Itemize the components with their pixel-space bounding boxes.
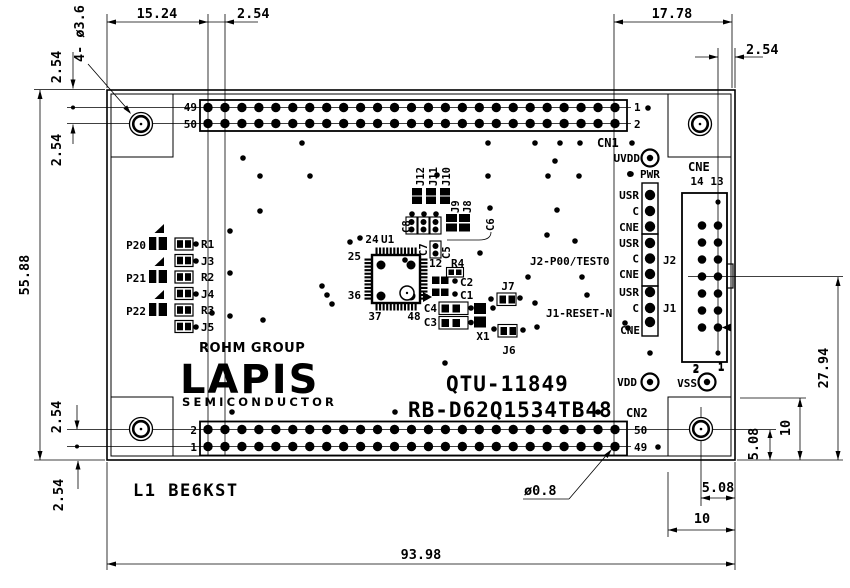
j2-signal-label: J2-P00/TEST0 <box>530 255 609 268</box>
cap-pad <box>441 289 449 297</box>
cne-pin14-label: 14 <box>690 175 704 188</box>
via-dot <box>240 155 246 161</box>
pin-dot <box>288 103 297 112</box>
jumper-pad <box>509 296 516 304</box>
pin-dot <box>441 119 450 128</box>
via-dot <box>452 278 458 284</box>
pin-dot <box>220 425 229 434</box>
pin-dot <box>288 119 297 128</box>
pin-dot <box>237 119 246 128</box>
via-dot <box>260 317 266 323</box>
pwr-label: PWR <box>640 168 660 181</box>
pin-dot <box>203 425 212 434</box>
rohm-group-text: ROHM GROUP <box>199 341 305 356</box>
pin-dot <box>542 119 551 128</box>
via-dot <box>557 140 563 146</box>
c4-label: C4 <box>424 302 438 315</box>
uvdd-label: UVDD <box>614 152 641 165</box>
pin-dot <box>339 425 348 434</box>
via-dot <box>324 292 330 298</box>
pin-dot <box>526 119 535 128</box>
chip-pad <box>185 257 191 265</box>
dim-value: 17.78 <box>652 6 693 22</box>
dim-left-top-pitch: 2.54 <box>49 125 76 167</box>
pin-dot <box>698 238 707 247</box>
cne-pin13-label: 13 <box>710 175 723 188</box>
pin-dot <box>288 442 297 451</box>
via-dot <box>491 326 497 332</box>
via-dot <box>490 305 496 311</box>
strip-pad <box>645 238 655 248</box>
via-dot <box>347 239 353 245</box>
pin-dot <box>339 103 348 112</box>
c8-label: C8 <box>401 220 413 233</box>
dim-value: 15.24 <box>137 6 178 22</box>
index-dot <box>715 199 720 204</box>
strip-pad <box>645 287 655 297</box>
j1-group-label: J1 <box>663 302 677 315</box>
pin-dot <box>203 442 212 451</box>
c5-label: C5 <box>441 246 453 259</box>
cn2-label: CN2 <box>626 406 648 420</box>
pin-dot <box>441 425 450 434</box>
pin-dot <box>373 119 382 128</box>
led-gap <box>156 303 158 316</box>
strip-row-label: CNE <box>620 324 640 337</box>
pin-dot <box>322 442 331 451</box>
cap-pad <box>433 219 439 225</box>
cap-pad <box>432 289 440 297</box>
pin-dot <box>339 442 348 451</box>
via-dot <box>517 295 523 301</box>
dim-value: 10 <box>778 420 794 436</box>
pin-dot <box>203 119 212 128</box>
pin-dot <box>356 119 365 128</box>
pin-dot <box>254 425 263 434</box>
via-dot <box>229 409 235 415</box>
cap-pad <box>441 277 449 285</box>
signal-labels: J2-P00/TEST0 J1-RESET-N <box>530 255 612 320</box>
via-dot <box>645 105 651 111</box>
strip-row-label: C <box>632 205 639 218</box>
jumper-pad <box>412 188 422 196</box>
x1-label: X1 <box>476 330 490 343</box>
u1-pin48-label: 48 <box>407 310 420 323</box>
pin-dot <box>322 119 331 128</box>
jumper-pad <box>510 327 517 335</box>
jumper-pad <box>459 214 470 222</box>
pin-dot <box>492 425 501 434</box>
c2-label: C2 <box>460 276 473 289</box>
pin-dot <box>698 221 707 230</box>
j10-label: J10 <box>441 167 453 186</box>
pin-dot <box>698 289 707 298</box>
jumper-pad <box>459 224 470 232</box>
drawing-canvas: 21 15.24 2.54 <box>0 0 850 584</box>
via-dot <box>257 208 263 214</box>
pin-dot <box>458 425 467 434</box>
chip-pad <box>177 323 183 331</box>
cap-pad <box>453 305 461 313</box>
via-dot <box>584 292 590 298</box>
pin-dot <box>373 442 382 451</box>
p21-label: P21 <box>126 272 146 285</box>
via-dot <box>227 270 233 276</box>
p20-label: P20 <box>126 239 146 252</box>
via-dot <box>357 235 363 241</box>
pin-dot <box>475 442 484 451</box>
dim-value: 2.54 <box>746 42 779 58</box>
pin-dot <box>559 442 568 451</box>
board-model-text: QTU-11849 <box>446 372 569 396</box>
via-dot <box>452 291 458 297</box>
dim-right-five: 5.08 <box>746 428 773 461</box>
chip-pad <box>177 306 183 314</box>
pin-dot <box>373 103 382 112</box>
u1-label: U1 <box>381 233 395 246</box>
pin-dot <box>356 425 365 434</box>
dim-value: ø0.8 <box>524 483 557 499</box>
led-components <box>149 224 167 316</box>
via-dot <box>485 173 491 179</box>
via-dot <box>227 228 233 234</box>
via-dot <box>525 274 531 280</box>
hole-center <box>699 123 702 126</box>
r3-label: R3 <box>201 304 214 317</box>
via-dot <box>554 207 560 213</box>
pin-dot <box>390 103 399 112</box>
jumper-pad <box>426 188 436 196</box>
u1-pin24-label: 24 <box>365 233 379 246</box>
u1-pin36-label: 36 <box>348 289 362 302</box>
j6-label: J6 <box>502 344 516 357</box>
r4-label: R4 <box>451 257 465 270</box>
dim-total-width: 93.98 <box>107 547 735 567</box>
pin-dot <box>576 442 585 451</box>
pin-dot <box>509 119 518 128</box>
via-dot <box>487 205 493 211</box>
cn1-pin50-label: 50 <box>184 118 197 131</box>
dim-left-bottom-offset: 2.54 <box>51 461 81 512</box>
hole-center <box>140 428 143 431</box>
pin-dot <box>407 119 416 128</box>
pin-dot <box>424 442 433 451</box>
via-dot <box>577 140 583 146</box>
via-dot <box>488 296 494 302</box>
hole-center <box>700 428 703 431</box>
board-part-text: RB-D62Q1534TB48 <box>408 398 613 422</box>
hole-diameter-note: 4- ø3.6 <box>72 5 131 114</box>
dim-value: 2.54 <box>51 479 67 512</box>
strip-row-label: USR <box>619 189 639 202</box>
pin-dot <box>237 442 246 451</box>
pin-dot <box>271 442 280 451</box>
pin-dot <box>509 103 518 112</box>
pin-dot <box>714 272 723 281</box>
via-dot <box>421 211 427 217</box>
pcb-dimension-drawing: 21 15.24 2.54 <box>0 0 850 584</box>
dim-value: 5.08 <box>746 428 762 461</box>
pin-dot <box>698 272 707 281</box>
via-dot <box>655 444 661 450</box>
strip-pads <box>645 190 655 327</box>
jumper-pad <box>446 214 457 222</box>
pin-dot <box>305 425 314 434</box>
pin-dot <box>610 442 619 451</box>
via-dot <box>545 173 551 179</box>
pin-dot <box>220 119 229 128</box>
via-dot <box>257 173 263 179</box>
via-dot <box>307 173 313 179</box>
j5-label: J5 <box>201 321 214 334</box>
strip-pad <box>645 253 655 263</box>
pin-dot <box>576 119 585 128</box>
cne-connector <box>682 193 733 362</box>
j8-label: J8 <box>462 200 474 213</box>
pin-dot <box>237 103 246 112</box>
jumper-pad <box>501 327 508 335</box>
pin-dot <box>305 103 314 112</box>
pin-dot <box>424 425 433 434</box>
pin-dot <box>373 425 382 434</box>
pin-dot <box>714 323 723 332</box>
pin-dot <box>559 103 568 112</box>
cn2-pin50-label: 50 <box>634 424 647 437</box>
jumper-pad <box>500 296 507 304</box>
pin-dot <box>254 119 263 128</box>
pin-dot <box>475 103 484 112</box>
pin-dot <box>254 103 263 112</box>
r4-pad <box>456 270 462 276</box>
jumper-pad <box>446 224 457 232</box>
cn1-pin2-label: 2 <box>634 118 641 131</box>
pin-dot <box>714 221 723 230</box>
u1-pin37-label: 37 <box>368 310 381 323</box>
pin-dot <box>593 442 602 451</box>
pin-dot <box>407 425 416 434</box>
pin-dot <box>542 425 551 434</box>
hole-center <box>140 123 143 126</box>
pin-dot <box>475 425 484 434</box>
via-dot <box>329 301 335 307</box>
pin-dot <box>542 103 551 112</box>
pin-dot <box>714 306 723 315</box>
dim-right-height: 27.94 <box>816 277 841 460</box>
via-dot <box>193 324 199 330</box>
pin-dot <box>492 103 501 112</box>
via-dot <box>227 313 233 319</box>
dim-left-bottom-pitch: 2.54 <box>49 401 80 449</box>
via-dot <box>544 232 550 238</box>
semiconductor-text: SEMICONDUCTOR <box>182 395 337 409</box>
vss-label: VSS <box>677 377 697 390</box>
pin-dot <box>509 442 518 451</box>
pin-dot <box>288 425 297 434</box>
chip-pad <box>177 240 183 248</box>
c3-label: C3 <box>424 316 437 329</box>
cn2-pin1-label: 1 <box>190 441 197 454</box>
pin-dot <box>492 442 501 451</box>
pin-dot <box>441 442 450 451</box>
strip-row-label: C <box>632 302 639 315</box>
via-dot <box>299 140 305 146</box>
strip-row-label: CNE <box>619 268 639 281</box>
j7-label: J7 <box>501 280 514 293</box>
chip-pad <box>185 323 191 331</box>
drawing-note-text: L1 BE6KST <box>133 481 239 501</box>
pin-dot <box>526 425 535 434</box>
pin-dot <box>458 119 467 128</box>
cn1-label: CN1 <box>597 136 619 150</box>
cap-pad <box>421 219 427 225</box>
strip-row-label: CNE <box>619 221 639 234</box>
cn2-pin2-label: 2 <box>190 424 197 437</box>
pin-dot <box>322 103 331 112</box>
pin-dot <box>390 425 399 434</box>
polarity-arrow <box>423 292 432 302</box>
strip-pad <box>645 221 655 231</box>
chip-pad <box>177 257 183 265</box>
pin-dot <box>424 119 433 128</box>
cap-pad <box>433 251 439 257</box>
pin-dot <box>475 119 484 128</box>
pin-dot <box>458 103 467 112</box>
resistor-column <box>175 238 193 333</box>
pin-dot <box>698 255 707 264</box>
pin-dot <box>610 119 619 128</box>
jumper-pad <box>412 197 422 205</box>
pin-dot <box>339 119 348 128</box>
pin-dot <box>714 255 723 264</box>
c7-label: C7 <box>418 243 430 256</box>
pin-dot <box>220 442 229 451</box>
via-dot <box>485 140 491 146</box>
j12-label: J12 <box>415 167 427 186</box>
via-dot <box>628 171 634 177</box>
dim-value: 4- ø3.6 <box>72 5 88 62</box>
pin-dot <box>559 119 568 128</box>
j3-label: J3 <box>201 255 214 268</box>
strip-row-label: C <box>632 253 639 266</box>
strip-pad <box>645 190 655 200</box>
jumper-pad <box>440 197 450 205</box>
chip-pad <box>185 306 191 314</box>
pin-dot <box>220 103 229 112</box>
cn2-pin49-label: 49 <box>634 441 647 454</box>
u1-pin25-label: 25 <box>348 250 361 263</box>
pin-dot <box>509 425 518 434</box>
via-dot <box>629 140 635 146</box>
pin-dot <box>305 442 314 451</box>
via-dot <box>579 274 585 280</box>
pin-dot <box>714 238 723 247</box>
dim-bottom-five: 5.08 <box>701 480 735 501</box>
cap-pad <box>433 243 439 249</box>
cne-label: CNE <box>688 160 710 174</box>
via-dot <box>392 409 398 415</box>
cap-pad <box>433 227 439 233</box>
via-dot <box>442 360 448 366</box>
pin-dot <box>271 103 280 112</box>
pin-dot <box>271 425 280 434</box>
index-dot <box>715 350 720 355</box>
strip-pad <box>645 303 655 313</box>
via-dot <box>552 158 558 164</box>
pin-dot <box>407 442 416 451</box>
led-arrow-icon <box>155 257 165 266</box>
via-dot <box>532 140 538 146</box>
cap-pad <box>453 319 461 327</box>
dim-value: 2.54 <box>49 134 65 167</box>
vdd-label: VDD <box>617 376 637 389</box>
pin-dot <box>407 103 416 112</box>
pin-dot <box>610 103 619 112</box>
via-dot <box>532 300 538 306</box>
dim-value: 2.54 <box>237 6 270 22</box>
x1-pad <box>474 317 486 328</box>
strip-row-label: USR <box>619 286 639 299</box>
pin-dot <box>610 425 619 434</box>
dim-value: 2.54 <box>49 401 65 434</box>
via-dot <box>433 211 439 217</box>
via-dot <box>193 291 199 297</box>
dim-value: 5.08 <box>702 480 735 496</box>
cap-pad <box>421 227 427 233</box>
j11-label: J11 <box>428 167 440 186</box>
cn1-pin1-label: 1 <box>634 101 641 114</box>
pin-dot <box>271 119 280 128</box>
via-dot <box>402 257 408 263</box>
uvdd-pad <box>647 155 653 161</box>
pin-dot <box>305 119 314 128</box>
j1-signal-label: J1-RESET-N <box>546 307 612 320</box>
pin-dot <box>356 442 365 451</box>
dim-value: 2.54 <box>49 51 65 84</box>
dim-value: 27.94 <box>816 348 832 389</box>
via-dot <box>409 211 415 217</box>
dim-top-right-width: 17.78 <box>614 6 732 25</box>
pin-dot <box>458 442 467 451</box>
chip-pad <box>185 240 191 248</box>
pin-dot <box>390 442 399 451</box>
c6-label: C6 <box>485 218 497 231</box>
via-dot <box>319 283 325 289</box>
pin-dot <box>593 119 602 128</box>
strip-row-label: USR <box>619 237 639 250</box>
via-dot <box>534 324 540 330</box>
c1-label: C1 <box>460 289 474 302</box>
vss-pad <box>704 379 710 385</box>
r1-label: R1 <box>201 238 215 251</box>
chip-pad <box>185 273 191 281</box>
pin-dot <box>424 103 433 112</box>
pin-dot <box>526 103 535 112</box>
x1-pad <box>474 303 486 314</box>
pin-dot <box>698 323 707 332</box>
pin-dot <box>576 425 585 434</box>
strip-pad <box>645 317 655 327</box>
pin-dot <box>559 425 568 434</box>
via-dot <box>468 305 474 311</box>
dim-left-height: 55.88 <box>17 90 43 460</box>
via-dot <box>193 241 199 247</box>
via-dot <box>520 327 526 333</box>
j2-group-label: J2 <box>663 254 676 267</box>
pin-dot <box>203 103 212 112</box>
dim-value: 55.88 <box>17 255 33 296</box>
pin-dot <box>593 103 602 112</box>
led-arrow-icon <box>155 224 165 233</box>
